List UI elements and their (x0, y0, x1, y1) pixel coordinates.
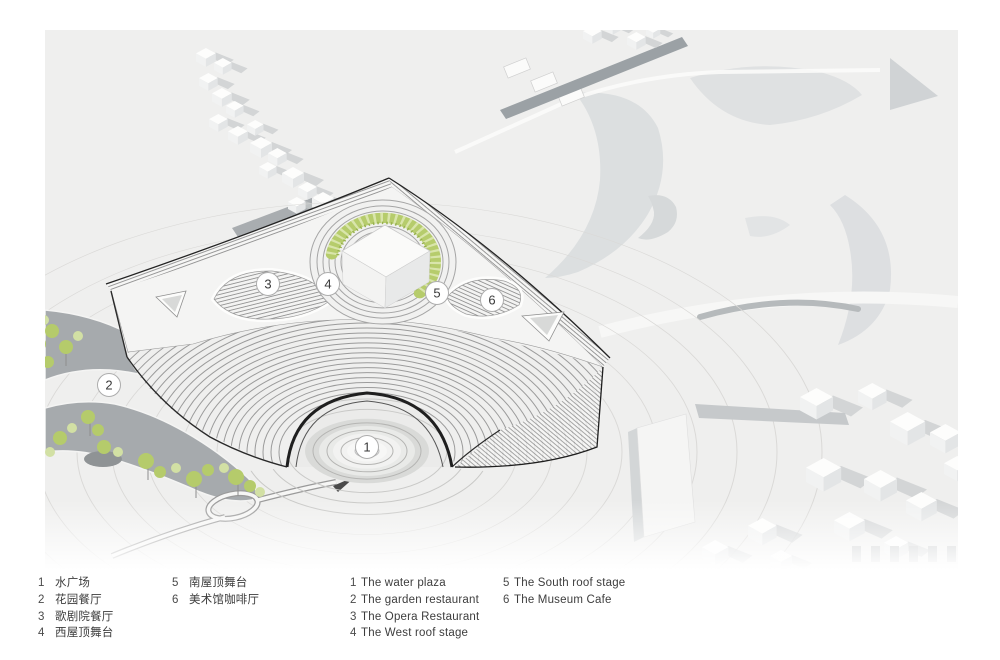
architectural-diagram-page: 1 2 3 4 5 6 1水广场 2花园餐厅 3歌剧院餐厅 4西屋顶舞台 5南屋… (0, 0, 1000, 660)
svg-text:1: 1 (363, 440, 370, 455)
marker-6-museum-cafe: 6 (481, 289, 504, 312)
marker-3-opera-restaurant: 3 (257, 273, 280, 296)
svg-text:3: 3 (264, 277, 271, 292)
svg-text:5: 5 (433, 286, 440, 301)
marker-4-west-roof-stage: 4 (317, 273, 340, 296)
marker-1-water-plaza: 1 (356, 436, 379, 459)
svg-text:6: 6 (488, 293, 495, 308)
marker-5-south-roof-stage: 5 (426, 282, 449, 305)
site-axonometric-drawing: 1 2 3 4 5 6 (0, 0, 1000, 660)
svg-text:2: 2 (105, 378, 112, 393)
marker-2-garden-restaurant: 2 (98, 374, 121, 397)
central-ring-terraces (310, 200, 456, 324)
svg-text:4: 4 (324, 277, 331, 292)
